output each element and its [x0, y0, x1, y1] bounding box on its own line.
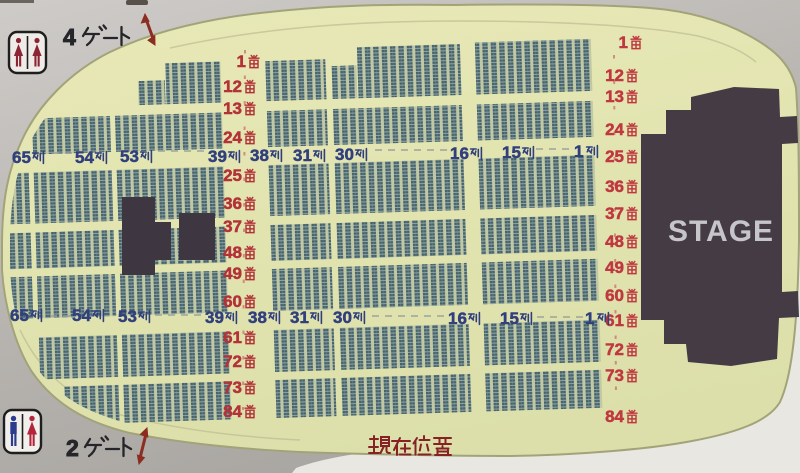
svg-text:4: 4 — [63, 24, 76, 50]
svg-text:25: 25 — [605, 147, 624, 166]
svg-text:48: 48 — [605, 232, 624, 251]
svg-text:60: 60 — [605, 286, 624, 305]
svg-text:15: 15 — [500, 309, 519, 328]
svg-text:84: 84 — [605, 407, 624, 426]
svg-text:13: 13 — [223, 99, 242, 118]
svg-text:1: 1 — [585, 309, 594, 328]
svg-text:65: 65 — [10, 306, 29, 325]
svg-text:30: 30 — [333, 308, 352, 327]
svg-text:72: 72 — [605, 340, 624, 359]
svg-text:31: 31 — [293, 146, 312, 165]
svg-text:1: 1 — [619, 33, 628, 52]
svg-text:84: 84 — [223, 402, 242, 421]
svg-text:54: 54 — [75, 148, 94, 167]
svg-text:37: 37 — [605, 204, 624, 223]
svg-text:49: 49 — [605, 258, 624, 277]
svg-text:30: 30 — [335, 145, 354, 164]
svg-text:24: 24 — [605, 120, 624, 139]
svg-text:60: 60 — [223, 292, 242, 311]
svg-text:73: 73 — [605, 366, 624, 385]
svg-text:65: 65 — [12, 148, 31, 167]
svg-text:37: 37 — [223, 217, 242, 236]
svg-text:STAGE: STAGE — [668, 215, 774, 248]
svg-text:54: 54 — [72, 306, 91, 325]
svg-text:73: 73 — [223, 378, 242, 397]
svg-text:53: 53 — [118, 307, 137, 326]
svg-text:24: 24 — [223, 128, 242, 147]
svg-text:16: 16 — [450, 144, 469, 163]
svg-text:36: 36 — [223, 194, 242, 213]
svg-text:48: 48 — [223, 243, 242, 262]
svg-text:15: 15 — [502, 143, 521, 162]
svg-text:61: 61 — [223, 328, 242, 347]
svg-text:2: 2 — [66, 435, 79, 461]
svg-text:53: 53 — [120, 147, 139, 166]
svg-text:49: 49 — [223, 264, 242, 283]
svg-text:1: 1 — [574, 142, 583, 161]
svg-text:1: 1 — [237, 52, 246, 71]
svg-text:13: 13 — [605, 87, 624, 106]
svg-text:38: 38 — [248, 308, 267, 327]
svg-text:72: 72 — [223, 352, 242, 371]
svg-text:39: 39 — [208, 147, 227, 166]
svg-text:16: 16 — [448, 309, 467, 328]
svg-text:12: 12 — [223, 77, 242, 96]
svg-text:12: 12 — [605, 66, 624, 85]
svg-text:31: 31 — [290, 308, 309, 327]
svg-text:39: 39 — [205, 308, 224, 327]
svg-text:38: 38 — [250, 146, 269, 165]
svg-text:36: 36 — [605, 177, 624, 196]
svg-text:25: 25 — [223, 166, 242, 185]
